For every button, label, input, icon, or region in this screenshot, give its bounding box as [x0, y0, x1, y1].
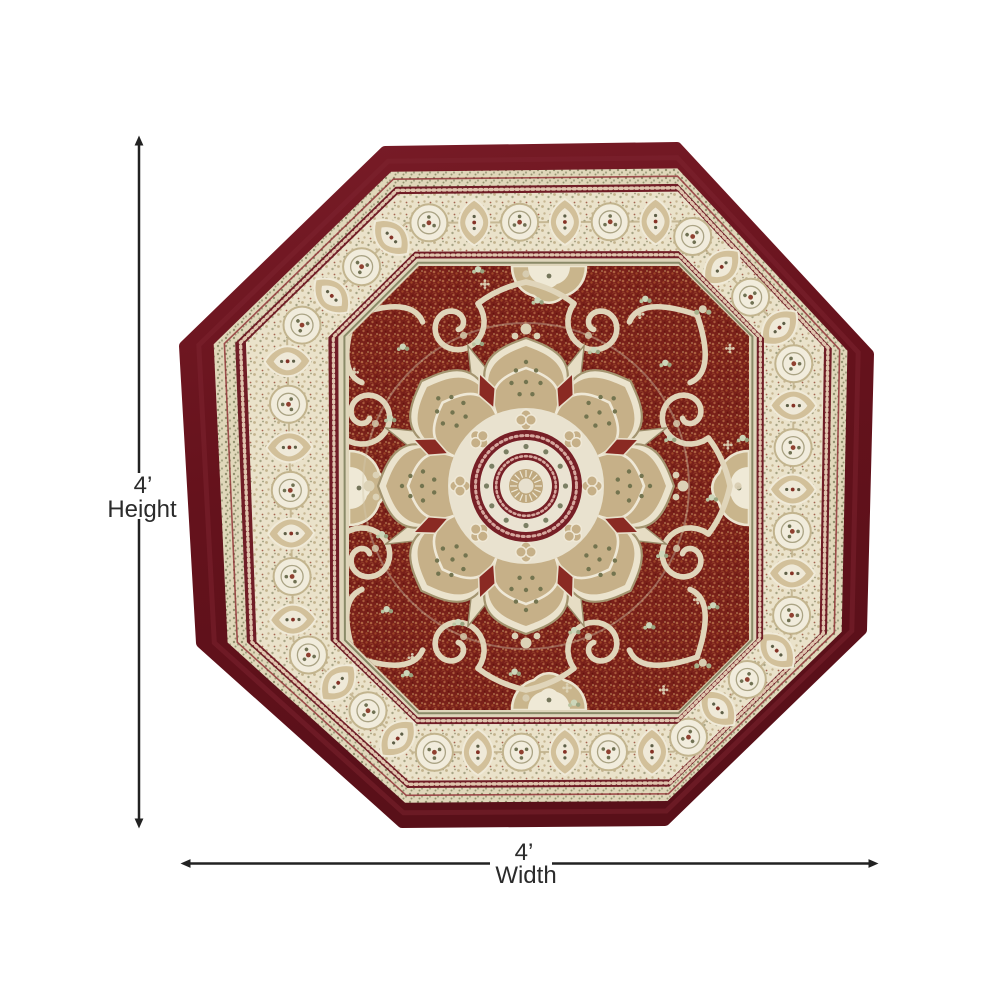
svg-text:Height: Height [107, 496, 177, 523]
svg-text:4’: 4’ [134, 472, 153, 499]
svg-text:Width: Width [495, 862, 556, 889]
